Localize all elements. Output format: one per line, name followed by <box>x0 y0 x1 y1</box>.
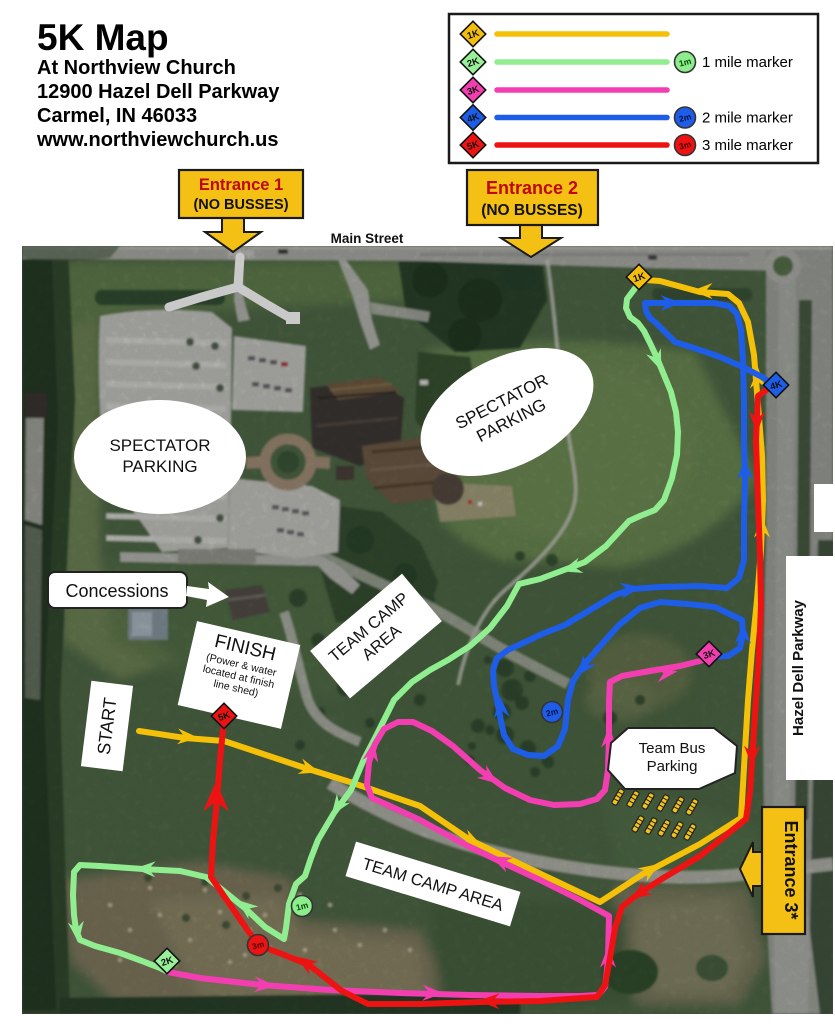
svg-text:3 mile marker: 3 mile marker <box>702 137 793 154</box>
svg-text:Entrance 1: Entrance 1 <box>199 176 283 194</box>
svg-text:(NO BUSSES): (NO BUSSES) <box>193 197 288 213</box>
svg-text:Parking: Parking <box>647 758 698 775</box>
svg-text:1 mile marker: 1 mile marker <box>702 54 793 71</box>
svg-text:(NO BUSSES): (NO BUSSES) <box>481 202 583 219</box>
svg-text:Entrance 2: Entrance 2 <box>486 178 578 198</box>
svg-text:Team Bus: Team Bus <box>639 740 706 757</box>
svg-text:5K Map: 5K Map <box>37 17 169 58</box>
svg-text:12900 Hazel Dell Parkway: 12900 Hazel Dell Parkway <box>37 81 280 103</box>
svg-text:At Northview Church: At Northview Church <box>37 57 236 79</box>
svg-text:Hazel Dell Parkway: Hazel Dell Parkway <box>790 599 807 736</box>
svg-text:Entrance 3*: Entrance 3* <box>781 820 801 919</box>
svg-text:2 mile marker: 2 mile marker <box>702 110 793 127</box>
svg-text:Carmel, IN 46033: Carmel, IN 46033 <box>37 105 197 127</box>
svg-text:PARKING: PARKING <box>122 457 197 476</box>
svg-text:www.northviewchurch.us: www.northviewchurch.us <box>36 129 279 151</box>
svg-text:SPECTATOR: SPECTATOR <box>109 436 210 455</box>
svg-text:Concessions: Concessions <box>65 581 168 601</box>
svg-text:Main Street: Main Street <box>331 231 404 246</box>
